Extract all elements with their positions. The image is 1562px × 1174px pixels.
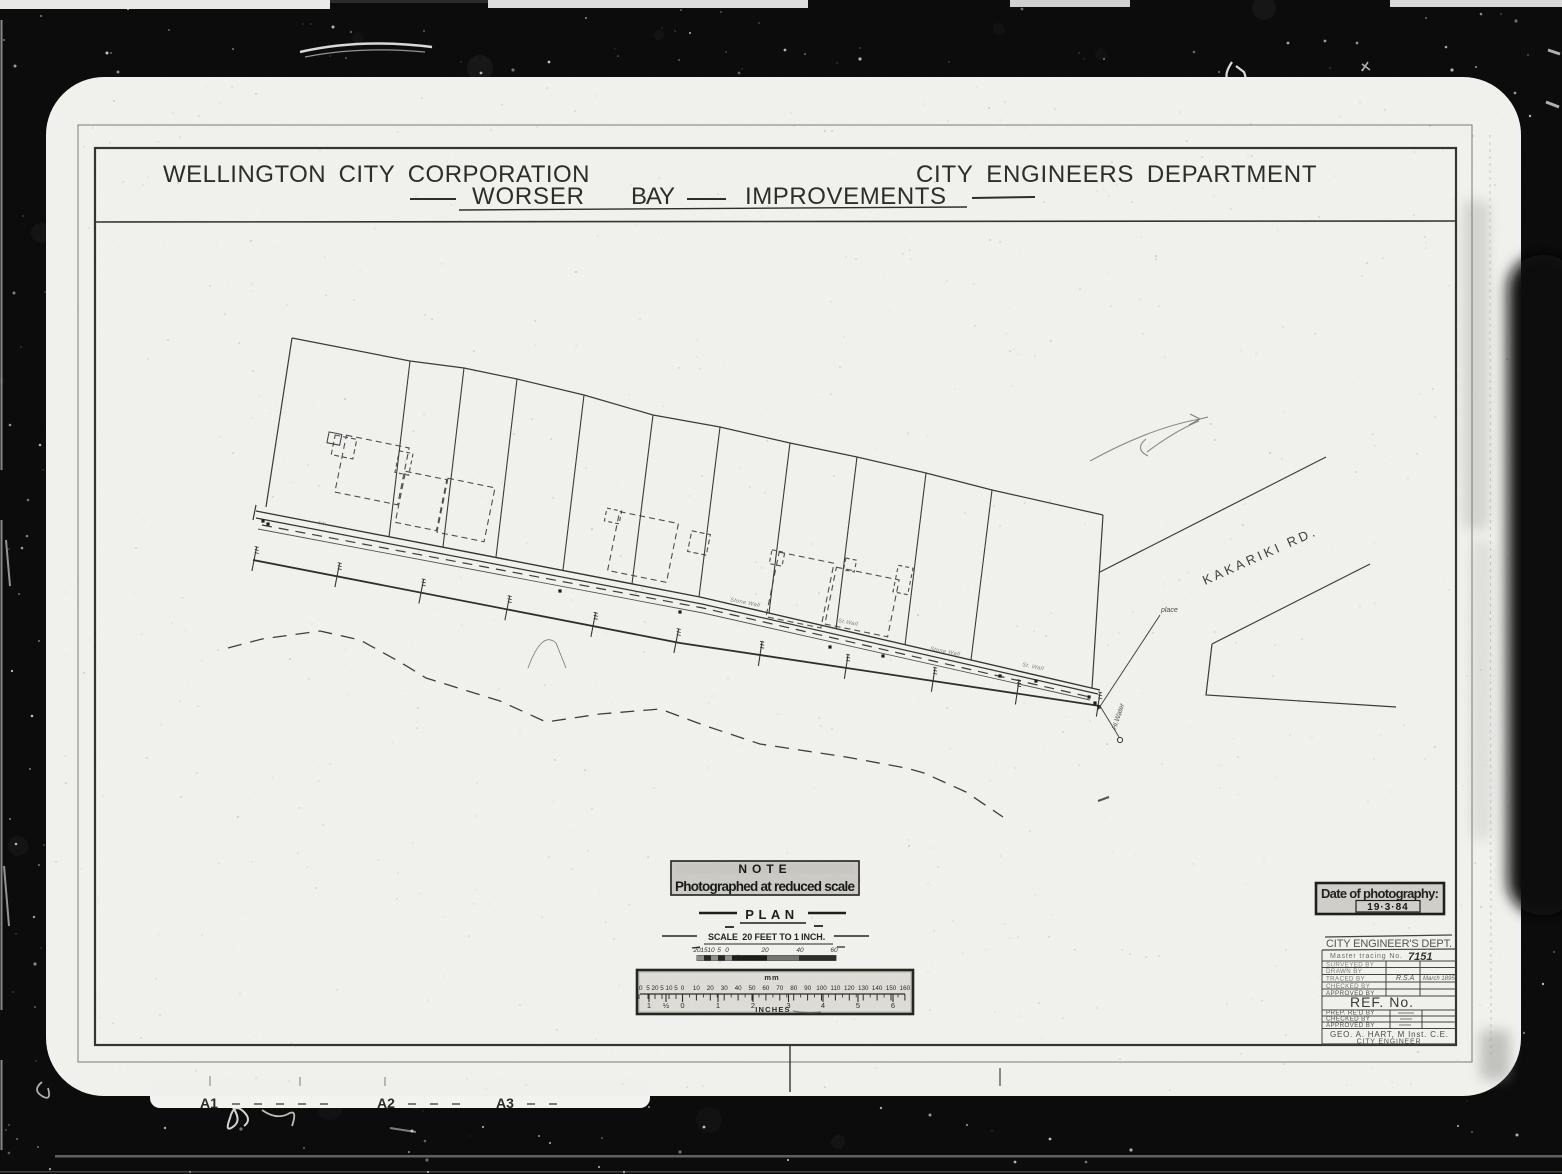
svg-text:Photographed at reduced scale: Photographed at reduced scale bbox=[675, 879, 855, 894]
svg-text:March 1895: March 1895 bbox=[1423, 976, 1455, 982]
svg-text:A3: A3 bbox=[496, 1095, 514, 1111]
svg-text:PLAN: PLAN bbox=[745, 907, 798, 922]
svg-text:R.S.A: R.S.A bbox=[1396, 975, 1415, 982]
svg-text:WORSER: WORSER bbox=[472, 183, 585, 210]
svg-text:CHECKED BY: CHECKED BY bbox=[1326, 983, 1370, 990]
svg-text:Master tracing No.: Master tracing No. bbox=[1330, 953, 1402, 960]
svg-text:CITY ENGINEER: CITY ENGINEER bbox=[1357, 1039, 1422, 1046]
svg-text:NOTE: NOTE bbox=[738, 862, 791, 876]
svg-text:60: 60 bbox=[830, 947, 838, 954]
svg-text:A1: A1 bbox=[200, 1095, 218, 1111]
svg-text:DRAWN BY: DRAWN BY bbox=[1326, 968, 1362, 975]
svg-text:40: 40 bbox=[796, 947, 804, 954]
svg-text:7151: 7151 bbox=[1408, 951, 1432, 963]
svg-text:BAY: BAY bbox=[631, 183, 676, 210]
svg-text:19·3·84: 19·3·84 bbox=[1367, 902, 1408, 913]
svg-text:SCALE 20 FEET TO 1 INCH.: SCALE 20 FEET TO 1 INCH. bbox=[708, 932, 826, 942]
svg-text:20: 20 bbox=[760, 947, 769, 954]
svg-text:0: 0 bbox=[725, 947, 729, 954]
svg-text:CITY ENGINEERS DEPARTMENT: CITY ENGINEERS DEPARTMENT bbox=[916, 161, 1320, 188]
svg-text:CITY ENGINEER'S DEPT.: CITY ENGINEER'S DEPT. bbox=[1326, 938, 1452, 950]
svg-text:place: place bbox=[1160, 607, 1178, 614]
svg-text:REF. No.: REF. No. bbox=[1350, 994, 1414, 1010]
svg-text:5: 5 bbox=[717, 947, 721, 954]
svg-text:A2: A2 bbox=[377, 1095, 395, 1111]
svg-text:TRACED BY: TRACED BY bbox=[1326, 976, 1365, 983]
svg-text:IMPROVEMENTS: IMPROVEMENTS bbox=[745, 183, 949, 210]
svg-text:10: 10 bbox=[707, 947, 715, 954]
svg-text:APPROVED BY: APPROVED BY bbox=[1326, 1022, 1375, 1029]
